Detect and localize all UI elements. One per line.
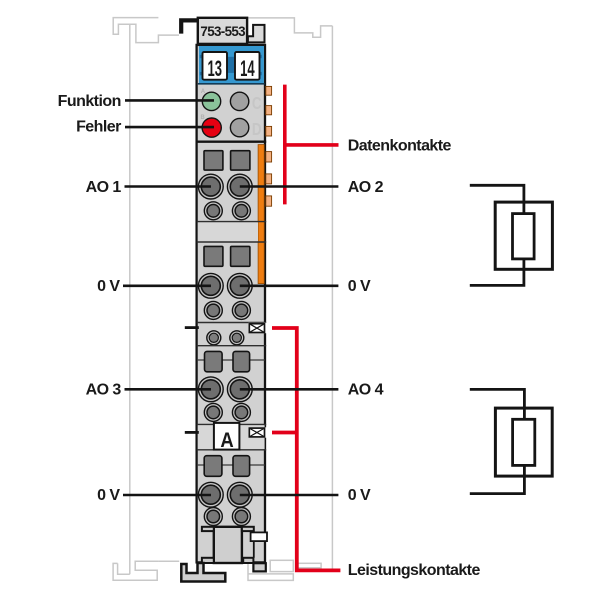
svg-text:Fehler: Fehler [76,119,121,136]
svg-text:Datenkontakte: Datenkontakte [348,138,452,155]
svg-text:0 V: 0 V [348,487,371,504]
svg-text:753-553: 753-553 [200,24,245,39]
svg-text:Funktion: Funktion [58,93,121,110]
svg-text:A: A [220,429,233,452]
svg-text:14: 14 [240,55,255,81]
svg-text:13: 13 [208,55,223,81]
svg-text:0 V: 0 V [97,487,120,504]
svg-text:AO 2: AO 2 [348,179,384,196]
svg-text:D: D [252,120,262,139]
svg-text:AO 1: AO 1 [86,179,122,196]
svg-text:0 V: 0 V [348,278,371,295]
svg-text:AO 3: AO 3 [86,382,122,399]
svg-text:C: C [252,95,262,114]
svg-text:B: B [200,114,205,121]
svg-text:AO 4: AO 4 [348,382,384,399]
svg-text:Leistungskontakte: Leistungskontakte [348,562,481,579]
svg-text:0 V: 0 V [97,278,120,295]
